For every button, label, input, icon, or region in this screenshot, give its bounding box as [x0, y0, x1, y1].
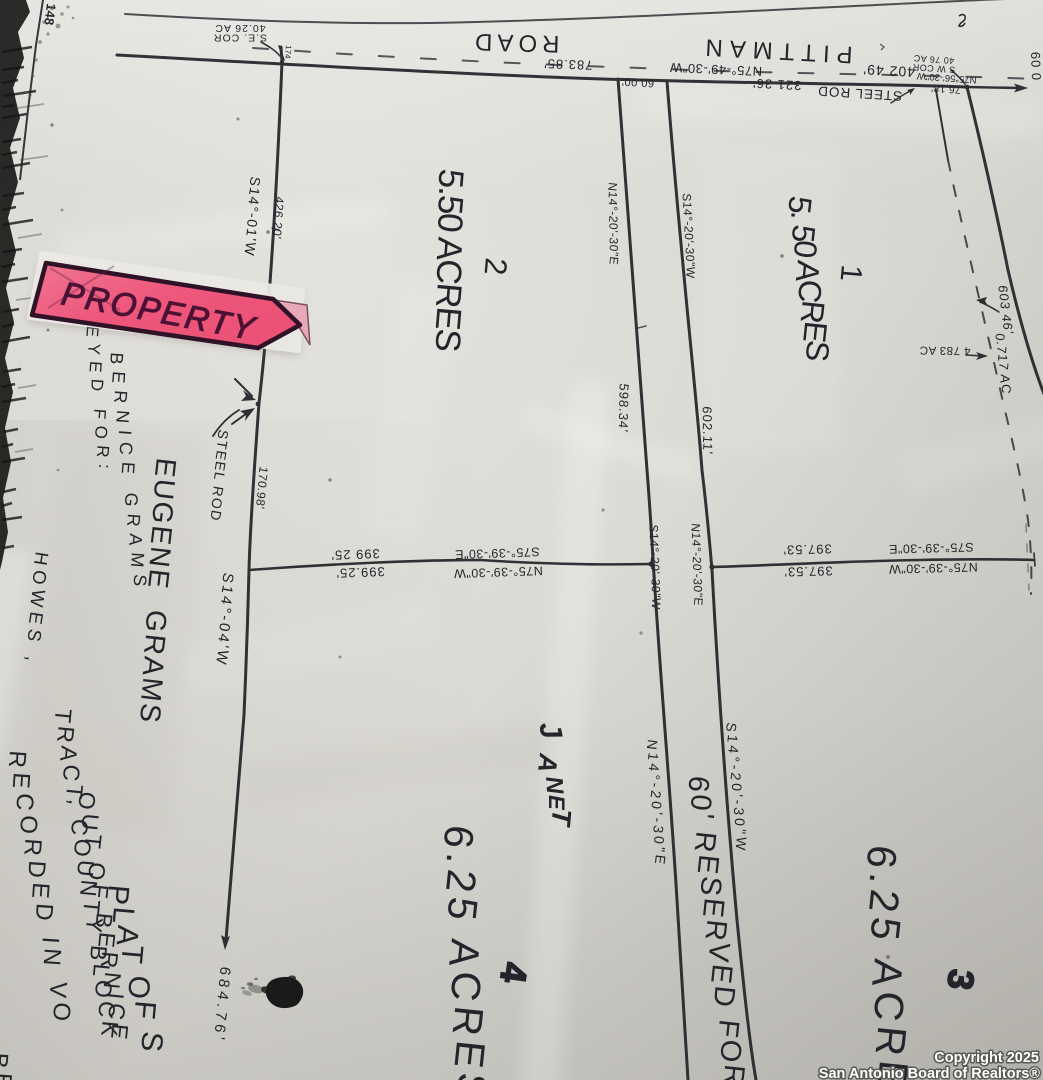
svg-text:Copyright 2025: Copyright 2025	[934, 1050, 1039, 1066]
svg-text:San Antonio Board of Realtors®: San Antonio Board of Realtors®	[819, 1066, 1041, 1080]
